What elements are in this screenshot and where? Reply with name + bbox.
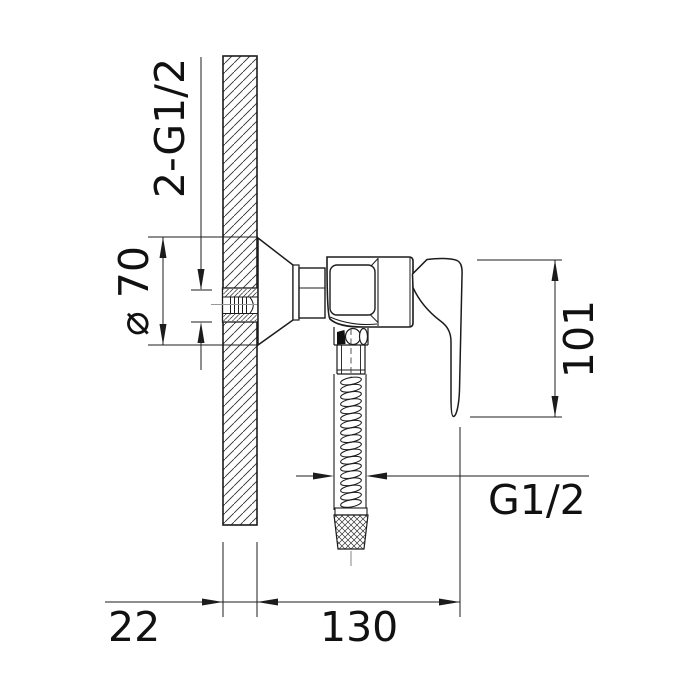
dimension-wall-thread (191, 57, 212, 370)
arrowhead (439, 599, 460, 606)
escutcheon-flange (258, 238, 299, 345)
technical-drawing-page: 2-G1/2 ⌀ 70 101 G1/2 22 130 (0, 0, 700, 700)
shower-mixer-drawing: 2-G1/2 ⌀ 70 101 G1/2 22 130 (0, 0, 700, 700)
lever-handle (413, 258, 463, 416)
outlet-clip (337, 330, 346, 345)
dimension-flange-diameter (160, 237, 167, 345)
label-depth: 130 (320, 603, 398, 651)
dimension-bottom (105, 427, 460, 617)
arrowhead (366, 473, 387, 480)
arrowhead (198, 269, 205, 290)
handle-outline (413, 258, 463, 416)
arrowhead (257, 599, 278, 606)
shower-hose (334, 374, 368, 566)
label-wall-thread: 2-G1/2 (146, 58, 194, 198)
label-flange-diameter: ⌀ 70 (110, 246, 158, 336)
arrowhead (160, 324, 167, 345)
arrowhead (552, 260, 559, 281)
label-hose-thread: G1/2 (488, 476, 586, 524)
fitting-hatch-bottom (224, 314, 258, 322)
fitting-hatch-top (224, 289, 258, 297)
hose-outlet (334, 327, 368, 377)
hose-nut (334, 508, 368, 549)
hose-coils (340, 376, 362, 509)
dimension-height (470, 260, 562, 417)
arrowhead (160, 237, 167, 258)
arrowhead (202, 599, 223, 606)
label-wall-thickness: 22 (108, 603, 160, 651)
valve-body (327, 257, 413, 327)
hose-nut-knurling (334, 515, 368, 549)
arrowhead (552, 396, 559, 417)
label-height: 101 (555, 300, 603, 378)
connector-nut (299, 268, 325, 318)
arrowhead (313, 473, 334, 480)
arrowhead (198, 322, 205, 343)
body-front-face (330, 265, 375, 315)
